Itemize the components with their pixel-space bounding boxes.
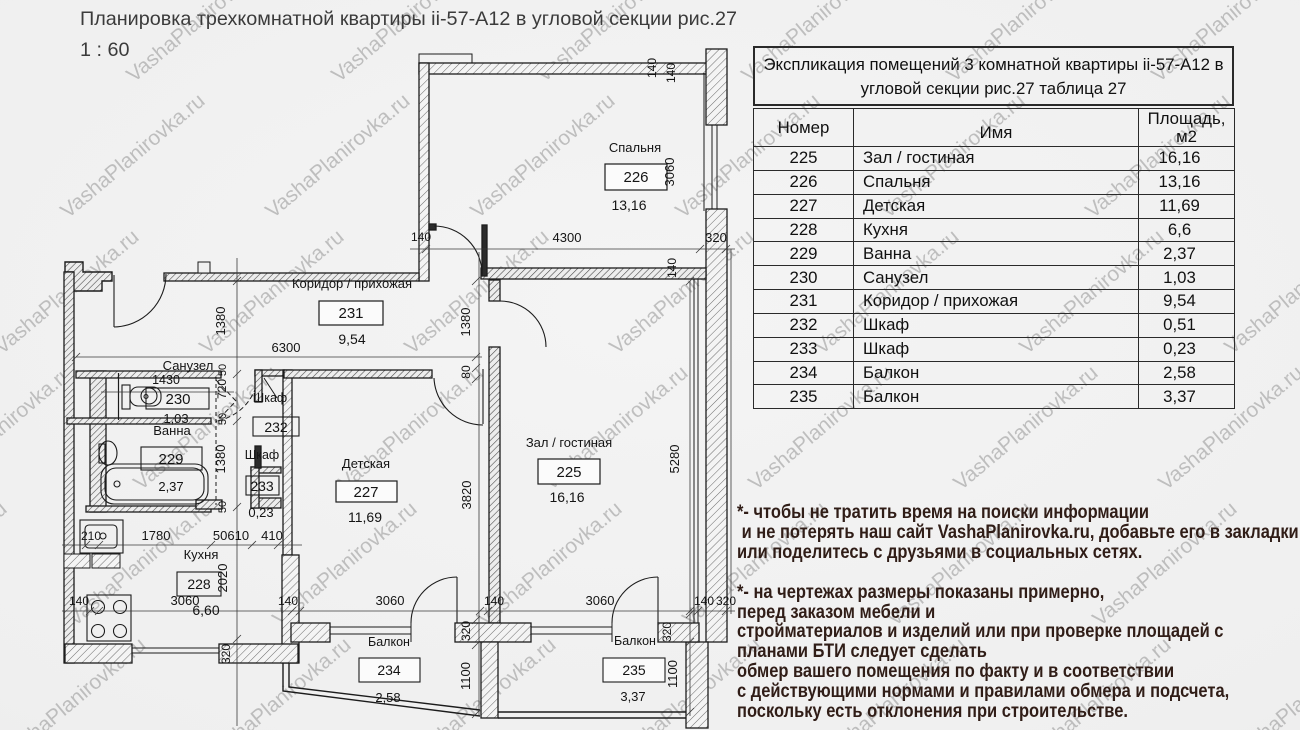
svg-text:3060: 3060 [376,593,405,608]
svg-text:Балкон: Балкон [368,635,410,649]
svg-text:232: 232 [264,419,288,435]
svg-text:230: 230 [165,391,190,408]
svg-text:1380: 1380 [213,445,228,474]
svg-text:9,54: 9,54 [338,331,365,347]
svg-text:210: 210 [81,529,101,543]
svg-text:Шкаф: Шкаф [253,391,287,405]
svg-text:228: 228 [187,576,211,592]
svg-text:229: 229 [158,451,183,468]
svg-text:50: 50 [217,501,229,513]
svg-text:140: 140 [665,258,679,278]
svg-text:3060: 3060 [662,158,677,187]
svg-text:140: 140 [278,594,298,608]
svg-text:2020: 2020 [215,564,230,593]
svg-text:3060: 3060 [586,593,615,608]
svg-text:2,58: 2,58 [375,690,400,705]
svg-text:Спальня: Спальня [609,140,661,155]
svg-text:225: 225 [556,464,581,481]
svg-text:1780: 1780 [142,528,171,543]
svg-text:Ванна: Ванна [153,423,191,438]
svg-text:140: 140 [694,594,714,608]
svg-text:1100: 1100 [665,660,680,688]
svg-text:6300: 6300 [272,340,301,355]
svg-text:13,16: 13,16 [611,197,646,213]
svg-text:0,23: 0,23 [248,505,273,520]
svg-text:80: 80 [459,365,473,379]
svg-text:140: 140 [645,58,659,78]
svg-text:3060: 3060 [171,593,200,608]
svg-text:320: 320 [219,644,233,664]
svg-text:410: 410 [261,528,283,543]
svg-text:5280: 5280 [667,445,682,474]
svg-text:Балкон: Балкон [614,634,656,648]
svg-text:227: 227 [353,484,378,501]
svg-text:140: 140 [484,594,504,608]
svg-text:16,16: 16,16 [549,489,584,505]
svg-text:140: 140 [411,230,431,244]
svg-text:Зал / гостиная: Зал / гостиная [526,435,612,450]
svg-text:1100: 1100 [458,662,473,690]
svg-text:Санузел: Санузел [163,358,214,373]
svg-text:226: 226 [623,169,648,186]
svg-text:Кухня: Кухня [184,547,219,562]
svg-text:50: 50 [217,413,229,425]
svg-text:1380: 1380 [458,308,473,337]
svg-text:234: 234 [377,662,401,678]
svg-text:720: 720 [215,379,229,399]
svg-text:Детская: Детская [342,456,390,471]
svg-text:Шкаф: Шкаф [245,448,279,462]
svg-text:235: 235 [622,662,646,678]
svg-text:4300: 4300 [553,230,582,245]
svg-text:50610: 50610 [213,528,249,543]
svg-text:320: 320 [459,621,473,641]
svg-text:3,37: 3,37 [620,689,645,704]
svg-text:1380: 1380 [213,307,228,336]
svg-text:2,37: 2,37 [158,479,183,494]
svg-text:Коридор / прихожая: Коридор / прихожая [292,276,412,291]
svg-text:50: 50 [217,364,229,376]
svg-text:11,69: 11,69 [348,509,382,525]
svg-text:320: 320 [716,594,736,608]
svg-text:233: 233 [250,478,274,494]
svg-text:320: 320 [660,622,674,642]
svg-text:231: 231 [338,305,363,322]
svg-text:3820: 3820 [459,481,474,510]
svg-text:1430: 1430 [152,373,180,387]
svg-text:320: 320 [705,230,727,245]
svg-text:140: 140 [664,63,678,83]
svg-text:140: 140 [69,594,89,608]
